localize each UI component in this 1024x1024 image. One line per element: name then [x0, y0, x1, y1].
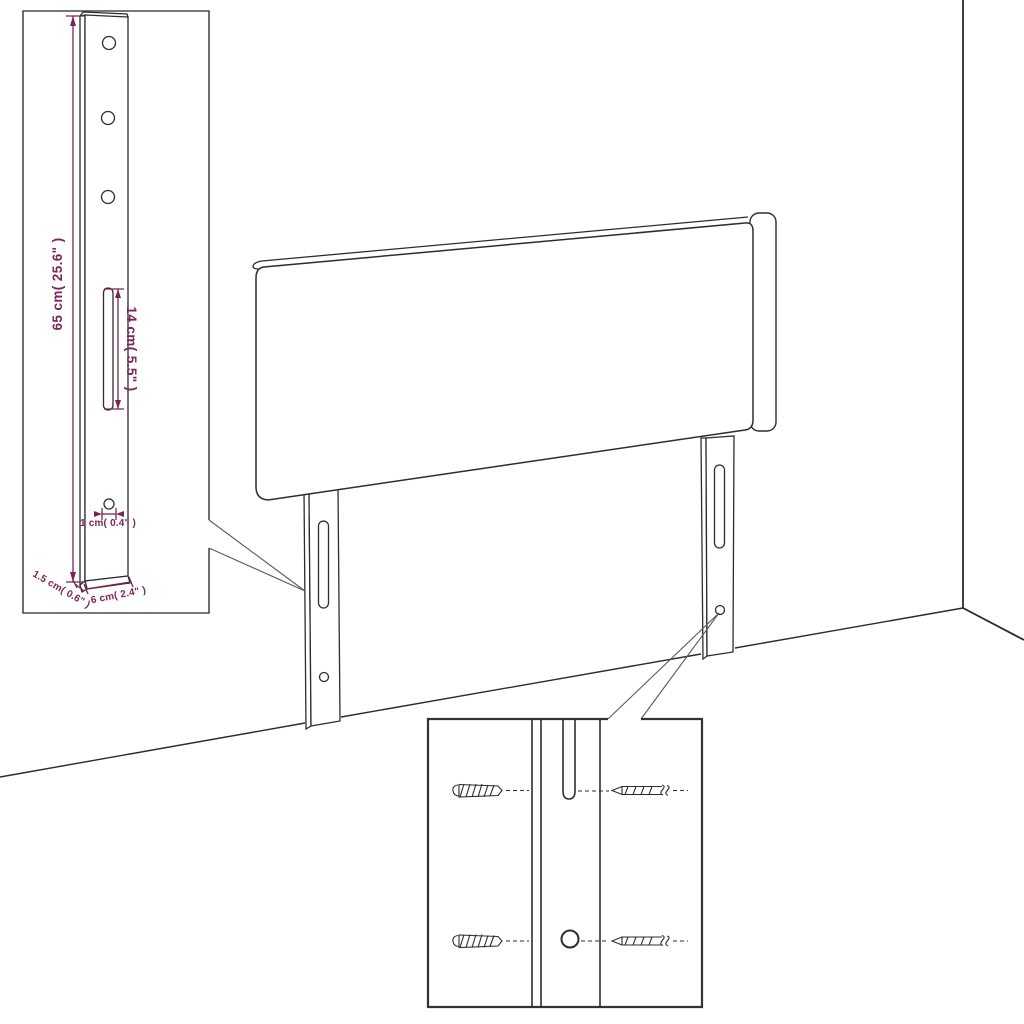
headboard-right-cap: [750, 213, 776, 431]
inset-screw-detail: [428, 613, 719, 1007]
bracket-side-face: [80, 15, 85, 585]
inset-screw-leaders: [608, 613, 719, 719]
label-slot-length: 14 cm( 5.5" ): [124, 306, 139, 391]
inset-bracket-leaders: [209, 520, 305, 591]
floor-line-left-3: [735, 608, 963, 648]
headboard-leg-left: [304, 488, 340, 729]
floor-line-right: [963, 608, 1024, 640]
bracket-drawing: [80, 12, 130, 592]
headboard: [253, 213, 776, 729]
label-bracket-height: 65 cm( 25.6" ): [50, 237, 65, 330]
floor-line-left-1: [0, 723, 305, 777]
headboard-front-panel: [256, 223, 753, 500]
floor-line-left-2: [341, 654, 701, 717]
inset-screw-bg: [428, 719, 702, 1007]
bracket-front-face: [85, 15, 128, 581]
headboard-assembly-diagram: 65 cm( 25.6" ) 14 cm( 5.5" ) 1 cm( 0.4" …: [0, 0, 1024, 1024]
leg-left-front-face: [309, 488, 340, 726]
leg-right-front-face: [706, 436, 734, 656]
label-hole-diameter: 1 cm( 0.4" ): [80, 518, 136, 529]
diagram-page: 65 cm( 25.6" ) 14 cm( 5.5" ) 1 cm( 0.4" …: [0, 0, 1024, 1024]
